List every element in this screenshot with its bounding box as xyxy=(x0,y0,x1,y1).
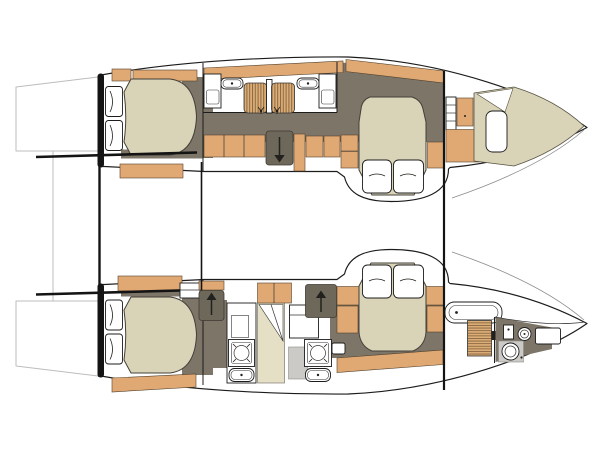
pillow xyxy=(363,160,392,193)
mattress xyxy=(124,79,197,155)
companionway-steps-up-forward xyxy=(306,285,337,318)
vanity-sink xyxy=(319,74,336,108)
pillow xyxy=(106,121,123,151)
mattress xyxy=(124,297,197,373)
forward-double-bed xyxy=(359,97,426,195)
aft-cabinet xyxy=(180,283,200,298)
floor-hatch xyxy=(332,343,345,354)
nightstand xyxy=(337,306,358,333)
vanity-basin xyxy=(445,302,502,323)
toilet xyxy=(297,78,319,89)
pillow xyxy=(363,265,392,298)
toilet xyxy=(229,369,254,382)
pillow xyxy=(394,265,424,298)
toilet xyxy=(499,341,524,362)
nightstand xyxy=(428,142,445,168)
port-hull xyxy=(36,57,587,202)
cockpit-bench xyxy=(118,276,182,291)
pillow xyxy=(394,160,424,193)
pillow xyxy=(106,334,123,364)
catamaran-floor-plan xyxy=(0,0,600,450)
shower-tray xyxy=(468,321,492,357)
cockpit-bench xyxy=(120,164,183,178)
sink xyxy=(229,340,255,367)
companionway-steps-up-aft xyxy=(199,281,224,321)
cabinet xyxy=(232,316,249,338)
shelf-unit xyxy=(446,97,456,130)
toilet-roll-holder xyxy=(504,325,514,339)
sink xyxy=(305,340,332,367)
aft-double-bed xyxy=(106,297,197,373)
pillow xyxy=(106,87,123,117)
swim-platform-top xyxy=(16,77,98,151)
locker xyxy=(457,98,473,126)
swim-platform-bottom xyxy=(16,301,98,376)
bow-compartment xyxy=(446,87,584,198)
locker xyxy=(112,69,131,81)
forward-double-bed xyxy=(359,263,426,351)
stern-platforms xyxy=(16,77,98,376)
floor-plan-drawing xyxy=(0,0,600,450)
aft-head-unit xyxy=(227,303,256,383)
forepeak-hatch xyxy=(486,111,507,152)
companionway-steps-down xyxy=(266,131,293,165)
pillow xyxy=(106,300,123,330)
starboard-hull xyxy=(36,250,587,395)
toilet xyxy=(221,78,243,89)
nightstand xyxy=(427,306,444,332)
shower-tray xyxy=(244,83,267,113)
sink xyxy=(518,328,531,341)
vanity-sink xyxy=(204,74,221,108)
bow-shelf xyxy=(536,328,561,344)
toilet xyxy=(306,369,331,382)
